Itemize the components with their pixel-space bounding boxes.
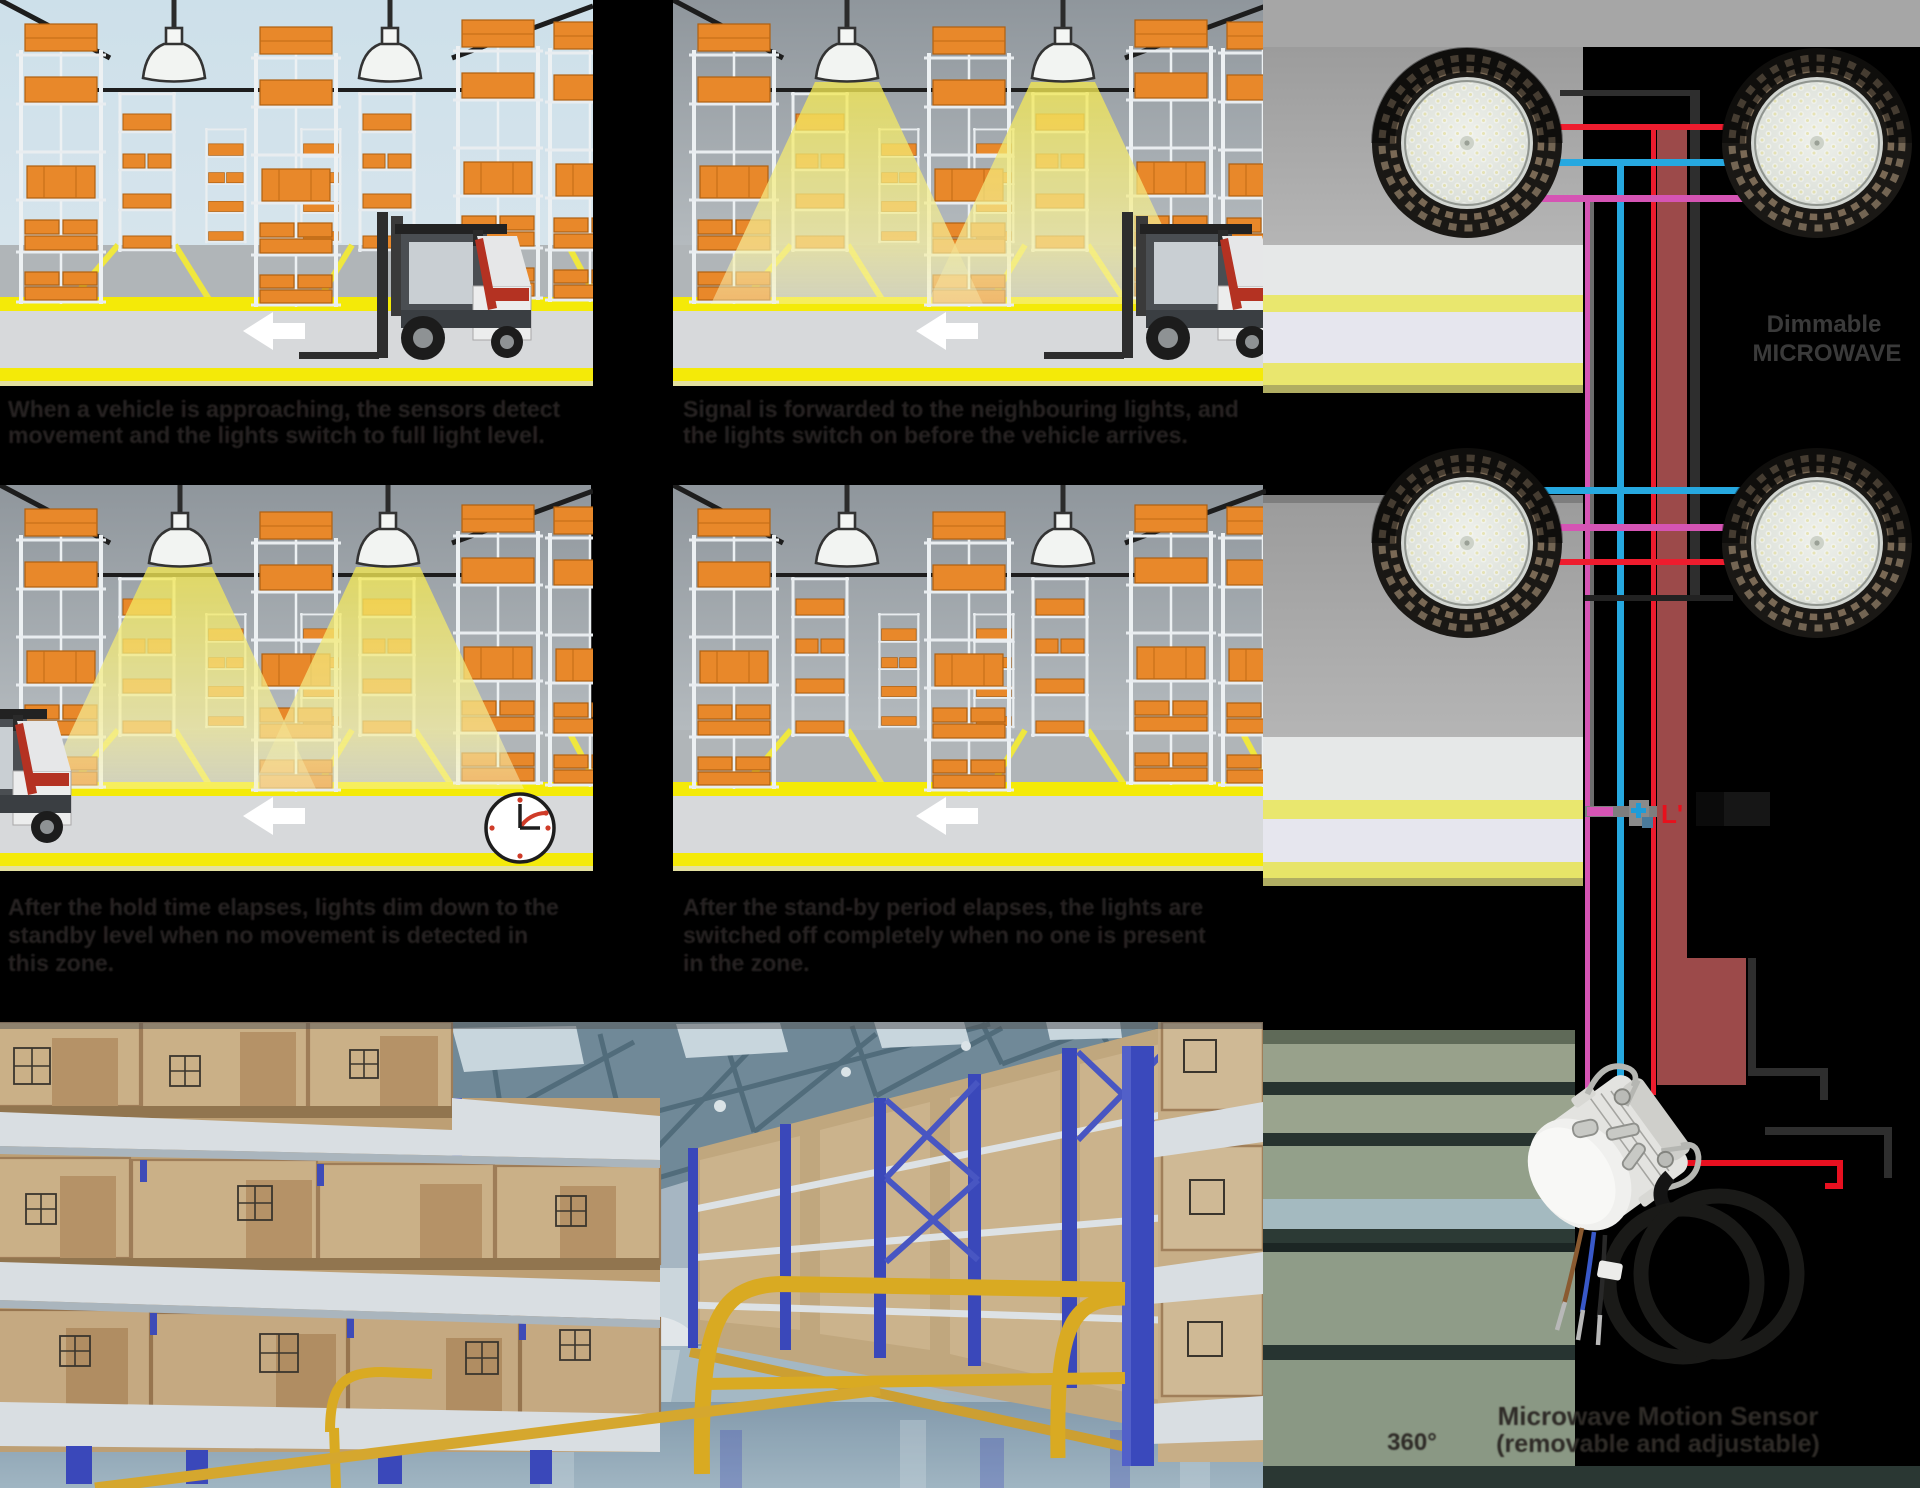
svg-text:(removable and adjustable): (removable and adjustable): [1496, 1430, 1820, 1458]
svg-text:L': L': [1661, 799, 1683, 829]
svg-text:When a vehicle is approaching,: When a vehicle is approaching, the senso…: [8, 396, 560, 422]
svg-text:360°: 360°: [1387, 1429, 1437, 1456]
svg-text:movement and the lights switch: movement and the lights switch to full l…: [8, 422, 545, 448]
svg-text:the lights switch on before th: the lights switch on before the vehicle …: [683, 422, 1188, 448]
svg-text:in the zone.: in the zone.: [683, 950, 810, 976]
svg-text:After the hold time elapses, l: After the hold time elapses, lights dim …: [8, 894, 559, 920]
svg-text:Signal is forwarded to the nei: Signal is forwarded to the neighbouring …: [683, 396, 1239, 422]
svg-text:this zone.: this zone.: [8, 950, 114, 976]
svg-text:switched off completely when n: switched off completely when no one is p…: [683, 922, 1206, 948]
svg-text:MICROWAVE: MICROWAVE: [1753, 340, 1902, 367]
svg-text:Microwave Motion Sensor: Microwave Motion Sensor: [1498, 1401, 1819, 1431]
svg-text:Dimmable: Dimmable: [1767, 311, 1882, 338]
svg-text:standby level when no movement: standby level when no movement is detect…: [8, 922, 528, 948]
svg-text:After the stand-by period elap: After the stand-by period elapses, the l…: [683, 894, 1203, 920]
